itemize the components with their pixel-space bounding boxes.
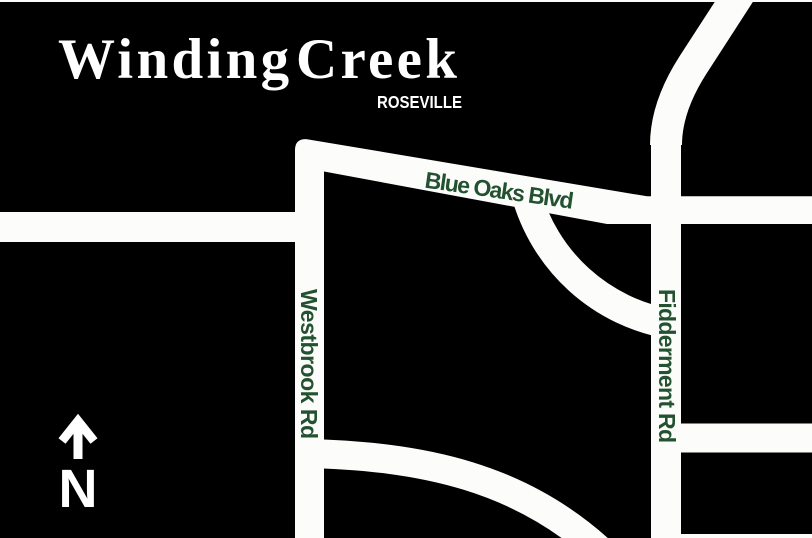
svg-text:Westbrook Rd: Westbrook Rd [296,289,322,439]
svg-text:ROSEVILLE: ROSEVILLE [377,92,462,112]
svg-text:Fidderment Rd: Fidderment Rd [654,289,680,443]
svg-text:N: N [59,459,98,519]
